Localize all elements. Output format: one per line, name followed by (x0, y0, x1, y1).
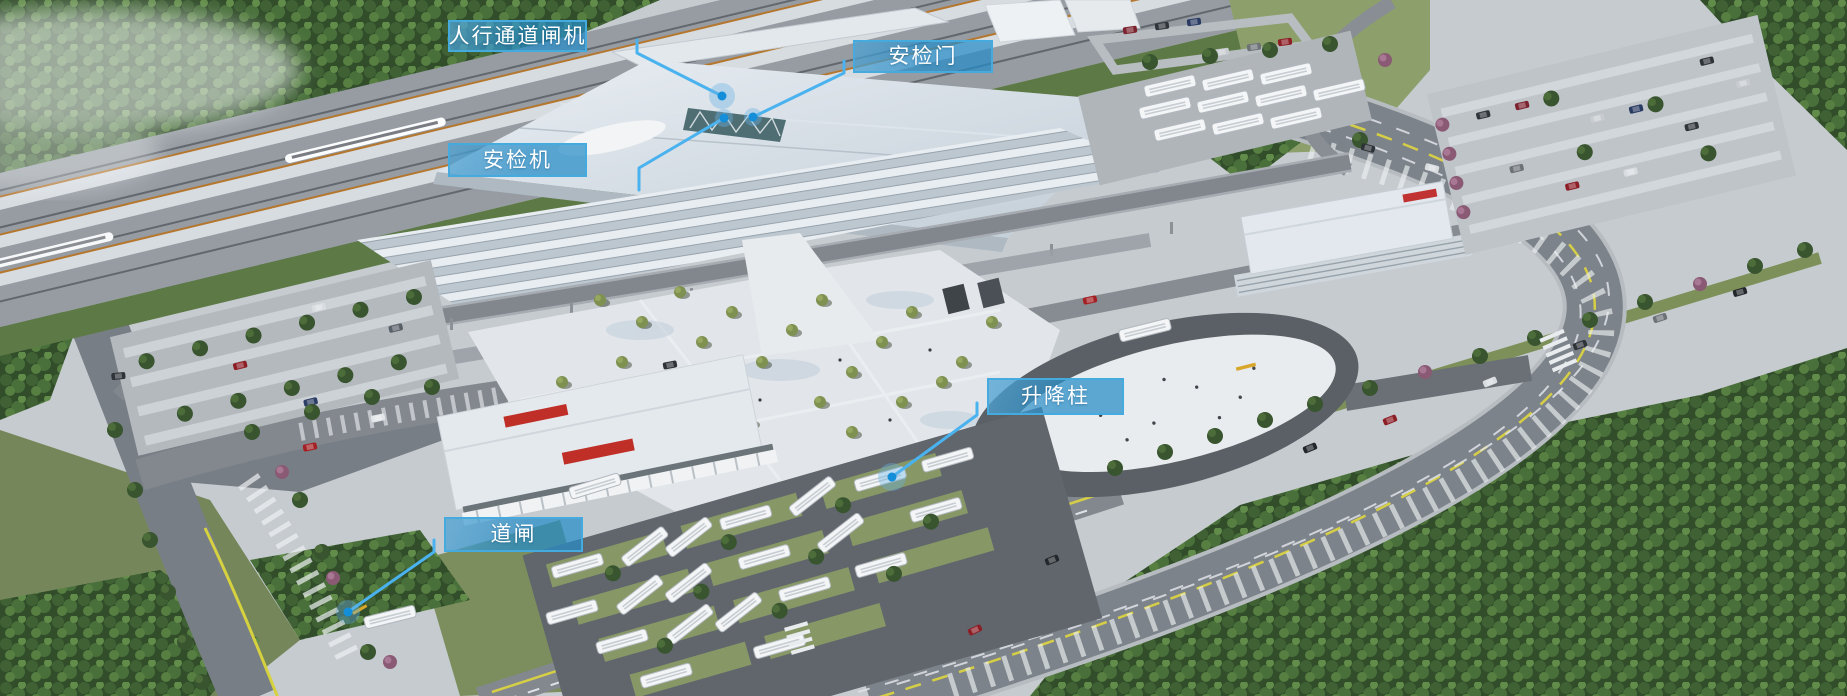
callout-security-scanner: 安检机 (448, 143, 587, 177)
callout-pedestrian-channel-gate: 人行通道闸机 (448, 20, 587, 52)
station-aerial-annotated-image: 人行通道闸机 安检门 安检机 升降柱 道闸 (0, 0, 1847, 696)
callout-barrier-gate: 道闸 (444, 517, 583, 552)
callout-lifting-bollard: 升降柱 (987, 378, 1124, 415)
callout-security-door: 安检门 (853, 40, 993, 73)
aerial-render (0, 0, 1847, 696)
